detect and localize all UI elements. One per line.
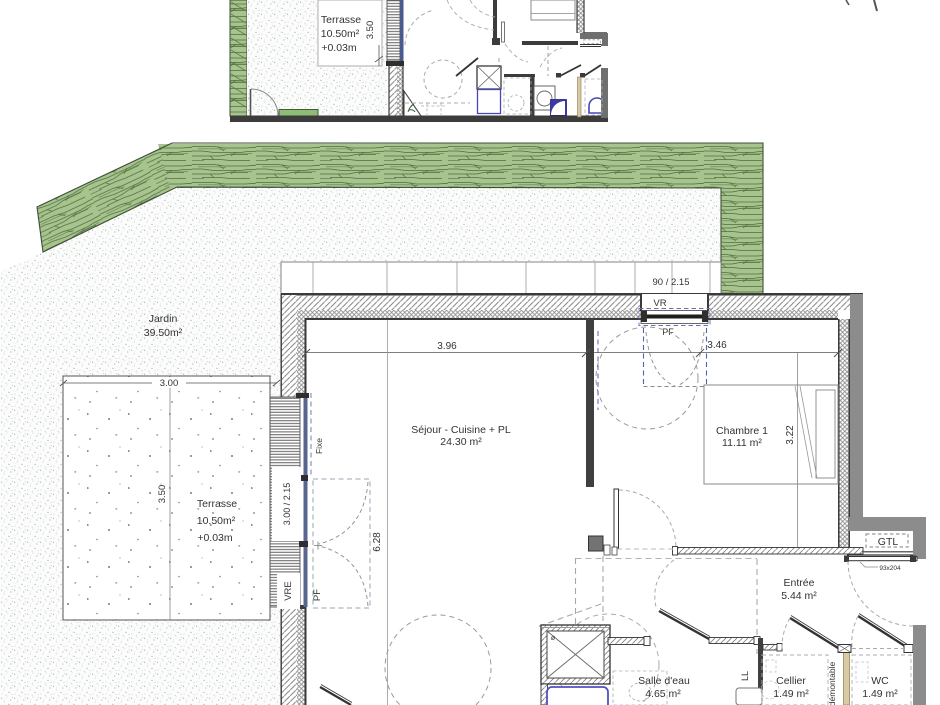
svg-text:démontable: démontable: [827, 662, 837, 705]
svg-text:Terrasse: Terrasse: [321, 14, 361, 26]
svg-text:WC: WC: [871, 675, 889, 687]
svg-text:+0.03m: +0.03m: [321, 42, 357, 54]
svg-text:5.44 m²: 5.44 m²: [781, 590, 817, 602]
svg-text:ø: ø: [551, 635, 556, 642]
svg-text:+0.03m: +0.03m: [197, 532, 233, 544]
svg-text:3.22: 3.22: [785, 425, 796, 445]
svg-text:3.00: 3.00: [160, 378, 179, 389]
svg-text:Fixe: Fixe: [314, 438, 324, 454]
svg-text:39.50m²: 39.50m²: [144, 327, 183, 339]
svg-text:3.50: 3.50: [365, 21, 376, 40]
svg-text:3.46: 3.46: [707, 340, 727, 351]
svg-text:90 / 2.15: 90 / 2.15: [653, 277, 690, 288]
svg-text:PF: PF: [312, 589, 323, 601]
svg-text:11.11 m²: 11.11 m²: [722, 437, 762, 449]
svg-text:24.30 m²: 24.30 m²: [440, 436, 482, 448]
svg-text:Chambre 1: Chambre 1: [716, 425, 768, 437]
svg-text:1.49 m²: 1.49 m²: [773, 688, 809, 700]
svg-text:3.50: 3.50: [157, 485, 168, 504]
svg-text:4.65 m²: 4.65 m²: [645, 688, 681, 700]
svg-text:VRE: VRE: [283, 581, 294, 601]
svg-text:Terrasse: Terrasse: [197, 498, 237, 510]
svg-text:93x204: 93x204: [879, 565, 901, 572]
svg-text:Salle d'eau: Salle d'eau: [638, 675, 690, 687]
svg-text:GTL: GTL: [878, 536, 899, 548]
svg-text:Cellier: Cellier: [776, 675, 806, 687]
svg-text:3.00 / 2.15: 3.00 / 2.15: [282, 483, 292, 526]
svg-text:6.28: 6.28: [372, 532, 383, 552]
svg-text:Jardin: Jardin: [149, 313, 178, 325]
svg-text:Séjour - Cuisine + PL: Séjour - Cuisine + PL: [411, 424, 511, 436]
svg-text:3.96: 3.96: [437, 341, 457, 352]
svg-text:10.50m²: 10.50m²: [197, 515, 236, 527]
svg-text:VR: VR: [653, 298, 666, 309]
svg-text:Entrée: Entrée: [784, 577, 815, 589]
svg-text:1.49 m²: 1.49 m²: [862, 688, 898, 700]
svg-text:10.50m²: 10.50m²: [321, 28, 360, 40]
svg-text:LL: LL: [740, 671, 750, 681]
